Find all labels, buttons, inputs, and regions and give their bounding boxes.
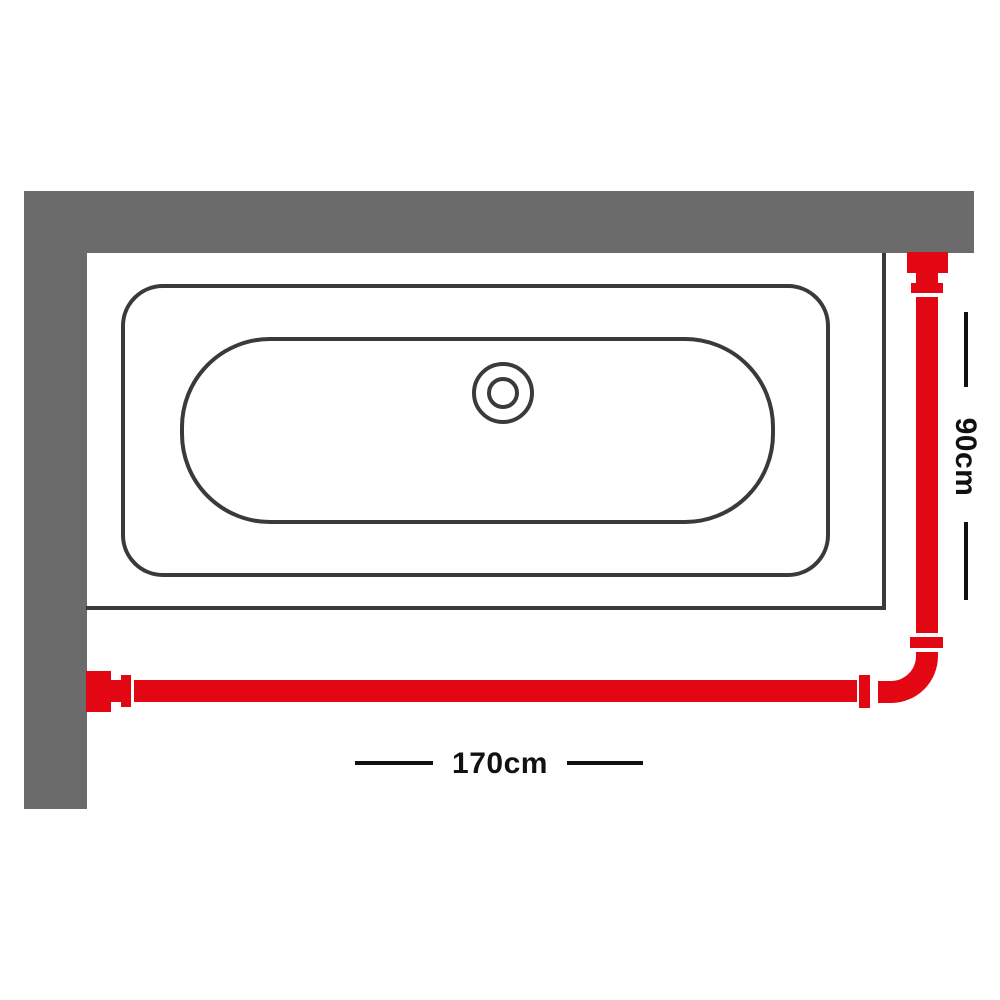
rail-horizontal-tube bbox=[134, 680, 857, 702]
wall-bracket-top-flange bbox=[911, 283, 943, 293]
dimension-label-width: 170cm bbox=[440, 747, 560, 781]
wall-bracket-left-neck bbox=[111, 680, 121, 702]
rail-corner-elbow bbox=[878, 652, 938, 703]
installation-diagram: 170cm 90cm bbox=[0, 0, 1000, 1000]
wall-bracket-left-flange bbox=[121, 675, 131, 707]
dimension-line-width-left bbox=[355, 761, 433, 765]
rail-vertical-tube bbox=[916, 297, 938, 633]
wall-left bbox=[24, 191, 87, 809]
dimension-line-height-top bbox=[964, 312, 968, 387]
tub-deck-bottom-edge bbox=[86, 606, 886, 610]
tub-deck-right-edge bbox=[882, 253, 886, 610]
rail-coupling-vertical bbox=[910, 637, 943, 648]
wall-bracket-left-block bbox=[86, 671, 111, 712]
wall-top bbox=[24, 191, 974, 253]
dimension-line-height-bottom bbox=[964, 522, 968, 600]
dimension-label-height: 90cm bbox=[948, 397, 982, 517]
bathtub-basin bbox=[180, 337, 775, 524]
drain-hole-icon bbox=[487, 377, 519, 409]
wall-bracket-top-neck bbox=[916, 273, 938, 283]
dimension-line-width-right bbox=[567, 761, 643, 765]
rail-coupling-horizontal bbox=[859, 675, 870, 708]
wall-bracket-top-block bbox=[907, 252, 948, 273]
